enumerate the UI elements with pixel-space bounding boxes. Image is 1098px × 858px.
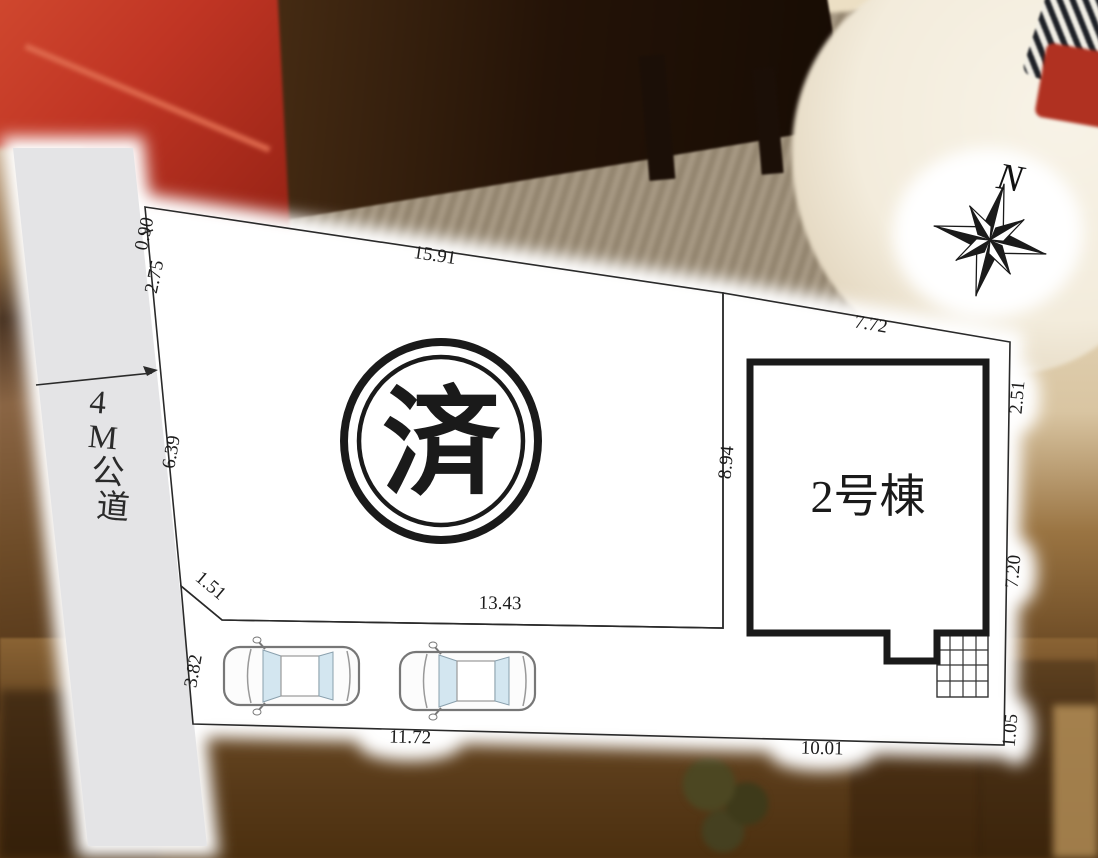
car-icon (224, 637, 359, 715)
road-label-char: 4 (88, 384, 108, 421)
road-label-char: 道 (95, 488, 131, 528)
dim-right-1: 2.51 (1006, 380, 1030, 415)
building-label: 2号棟 (811, 471, 926, 522)
car-icon (400, 642, 535, 720)
dim-right-2: 7.20 (1002, 554, 1026, 589)
dim-building-left: 8.94 (715, 445, 739, 480)
sold-stamp: 済 (344, 342, 538, 540)
screenshot-root: 4 M 公 道 2号棟 済 15.91 0.90 (0, 0, 1098, 858)
road-label-char: M (87, 419, 119, 457)
plot-layout-diagram: 4 M 公 道 2号棟 済 15.91 0.90 (0, 0, 1098, 858)
road-label-char: 公 (90, 454, 126, 493)
sold-stamp-label: 済 (382, 378, 501, 510)
dim-right-3: 1.05 (999, 713, 1023, 748)
dim-inner-bottom: 13.43 (479, 593, 522, 615)
dim-parking-bottom: 11.72 (389, 726, 432, 748)
porch-tile-grid (937, 635, 988, 697)
dim-green-bottom: 10.01 (801, 737, 844, 759)
